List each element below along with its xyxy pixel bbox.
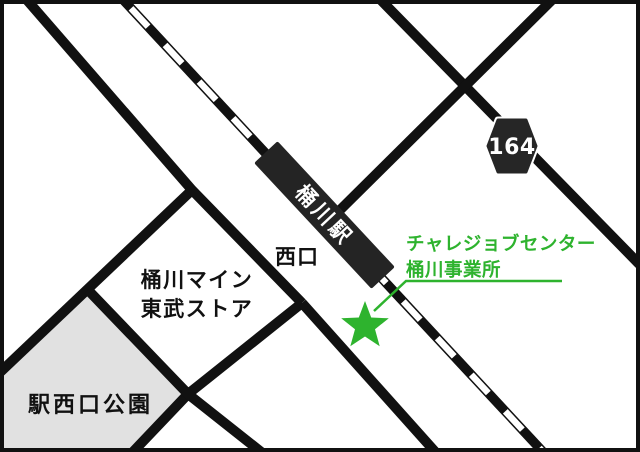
store-label-line2: 東武ストア bbox=[141, 297, 254, 321]
store-label-line1: 桶川マイン bbox=[141, 268, 254, 292]
destination-label-line2: 桶川事業所 bbox=[406, 259, 501, 281]
route-badge: 164 bbox=[488, 120, 536, 172]
destination-label-line1: チャレジョブセンター bbox=[406, 233, 596, 255]
park-label: 駅西口公園 bbox=[28, 393, 153, 418]
access-map: 桶川駅 164 チャレジョブセンター 桶川事業所 西口 桶川マイン 東武ストア … bbox=[0, 0, 640, 452]
route-badge-number: 164 bbox=[488, 135, 535, 160]
west-exit-label: 西口 bbox=[275, 245, 319, 269]
map-canvas: 桶川駅 164 チャレジョブセンター 桶川事業所 西口 桶川マイン 東武ストア … bbox=[0, 0, 640, 452]
